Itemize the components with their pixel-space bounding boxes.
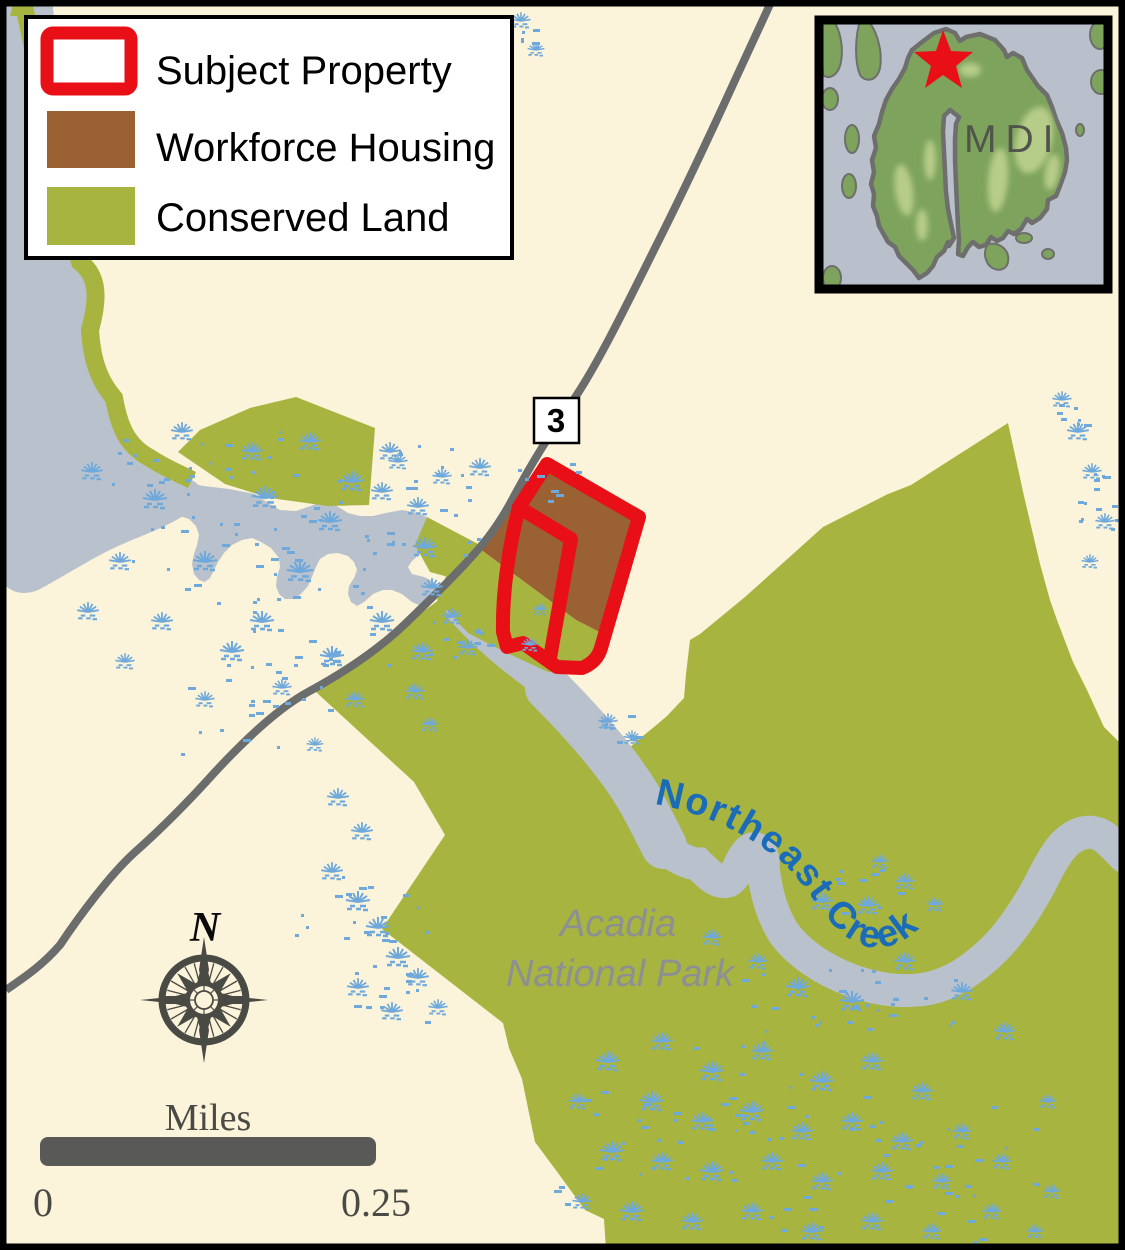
svg-text:Acadia: Acadia	[558, 903, 676, 945]
svg-text:N: N	[189, 905, 222, 951]
svg-text:0: 0	[33, 1180, 53, 1225]
svg-text:Conserved Land: Conserved Land	[156, 196, 450, 240]
svg-text:Workforce Housing: Workforce Housing	[156, 126, 495, 170]
svg-text:0.25: 0.25	[341, 1180, 411, 1225]
svg-text:MDI: MDI	[964, 118, 1063, 161]
svg-text:Miles: Miles	[165, 1097, 252, 1139]
svg-text:National Park: National Park	[506, 953, 736, 995]
svg-text:Subject Property: Subject Property	[156, 49, 452, 93]
svg-text:3: 3	[547, 402, 565, 439]
